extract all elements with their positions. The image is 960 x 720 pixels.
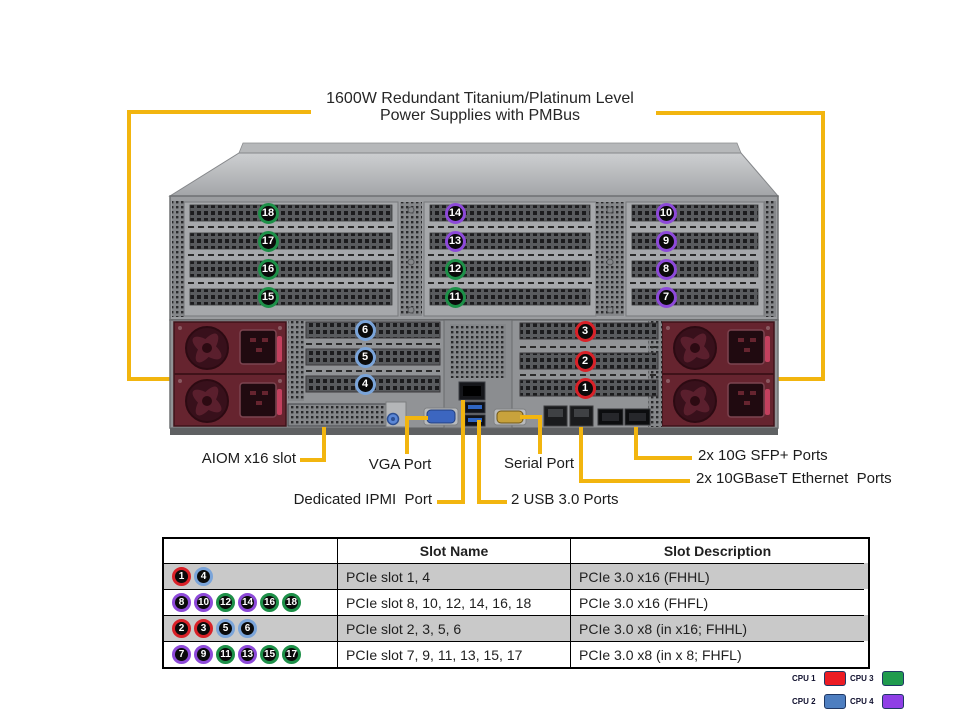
- rear-slot-badge-14: 14: [445, 203, 466, 224]
- page: 1600W Redundant Titanium/Platinum Level …: [0, 0, 960, 720]
- table-slot-badge-1: 1: [172, 567, 191, 586]
- legend-row-1: CPU 1CPU 3: [792, 671, 952, 685]
- legend-item-cpu-3: CPU 3: [850, 671, 908, 686]
- legend-color-swatch: [882, 671, 904, 686]
- table-slot-badge-16: 16: [260, 593, 279, 612]
- slot-name-cell: PCIe slot 7, 9, 11, 13, 15, 17: [337, 641, 570, 667]
- rear-slot-badge-5: 5: [355, 347, 376, 368]
- table-slot-badge-18: 18: [282, 593, 301, 612]
- aiom-callout-line: [322, 427, 326, 462]
- slot-badge-cell: 14: [164, 563, 337, 589]
- slot-name-cell: PCIe slot 2, 3, 5, 6: [337, 615, 570, 641]
- chassis-lid-back-edge: [239, 143, 741, 153]
- slot-description-cell: PCIe 3.0 x8 (in x16; FHHL): [570, 615, 864, 641]
- slot-table-header-2: Slot Description: [570, 539, 864, 563]
- edge-vent-right: [764, 201, 776, 317]
- aiom-label: AIOM x16 slot: [170, 451, 296, 466]
- usb-callout-line: [477, 420, 481, 504]
- slot-table-header-0: [164, 539, 337, 563]
- sfp-label: 2x 10G SFP+ Ports: [698, 448, 828, 463]
- baset-callout-stub: [579, 479, 690, 483]
- table-slot-badge-9: 9: [194, 645, 213, 664]
- legend-label: CPU 1: [792, 674, 818, 683]
- sfp-callout-stub: [634, 456, 692, 460]
- power-supply-right: [662, 322, 774, 426]
- table-slot-badge-2: 2: [172, 619, 191, 638]
- chassis-lid: [170, 153, 778, 196]
- vga-port: [424, 408, 458, 425]
- slot-name-cell: PCIe slot 1, 4: [337, 563, 570, 589]
- table-slot-badge-5: 5: [216, 619, 235, 638]
- rear-slot-badge-10: 10: [656, 203, 677, 224]
- legend-color-swatch: [882, 694, 904, 709]
- table-slot-badge-10: 10: [194, 593, 213, 612]
- rear-slot-badge-12: 12: [445, 259, 466, 280]
- edge-vent-left: [172, 201, 184, 317]
- table-slot-badge-4: 4: [194, 567, 213, 586]
- rear-slot-badge-9: 9: [656, 231, 677, 252]
- vent-strip-center-left: [288, 321, 304, 401]
- legend-color-swatch: [824, 671, 846, 686]
- chassis-foot: [170, 428, 778, 435]
- usb-label: 2 USB 3.0 Ports: [511, 492, 619, 507]
- legend-item-cpu-4: CPU 4: [850, 694, 908, 709]
- psu-bracket-right-top: [656, 111, 825, 115]
- ipmi-label: Dedicated IPMI Port: [270, 492, 432, 507]
- rear-slot-badge-18: 18: [258, 203, 279, 224]
- legend-row-2: CPU 2CPU 4: [792, 694, 952, 708]
- rear-slot-badge-3: 3: [575, 321, 596, 342]
- rear-slot-badge-2: 2: [575, 351, 596, 372]
- rear-slot-badge-1: 1: [575, 378, 596, 399]
- legend-color-swatch: [824, 694, 846, 709]
- legend-label: CPU 2: [792, 697, 818, 706]
- table-slot-badge-12: 12: [216, 593, 235, 612]
- rear-slot-badge-17: 17: [258, 231, 279, 252]
- legend-label: CPU 4: [850, 697, 876, 706]
- vga-callout-line: [405, 416, 409, 454]
- psu-title-line2: Power Supplies with PMBus: [380, 107, 580, 124]
- slot-table-row-1: 14PCIe slot 1, 4PCIe 3.0 x16 (FHHL): [164, 563, 868, 589]
- rear-slot-badge-4: 4: [355, 374, 376, 395]
- table-slot-badge-6: 6: [238, 619, 257, 638]
- slot-badge-cell: 7911131517: [164, 641, 337, 667]
- psu-callout-title: 1600W Redundant Titanium/Platinum Level …: [0, 90, 960, 124]
- baset-label: 2x 10GBaseT Ethernet Ports: [696, 471, 892, 486]
- table-slot-badge-7: 7: [172, 645, 191, 664]
- serial-callout-line: [538, 415, 542, 454]
- slot-badge-cell: 2356: [164, 615, 337, 641]
- slot-name-cell: PCIe slot 8, 10, 12, 14, 16, 18: [337, 589, 570, 615]
- psu-bracket-left-top: [127, 110, 311, 114]
- rear-slot-badge-8: 8: [656, 259, 677, 280]
- slot-table-row-3: 2356PCIe slot 2, 3, 5, 6PCIe 3.0 x8 (in …: [164, 615, 868, 641]
- legend-item-cpu-1: CPU 1: [792, 671, 850, 686]
- table-slot-badge-3: 3: [194, 619, 213, 638]
- rear-slot-badge-15: 15: [258, 287, 279, 308]
- aiom-slot: [288, 404, 386, 426]
- table-slot-badge-14: 14: [238, 593, 257, 612]
- table-slot-badge-15: 15: [260, 645, 279, 664]
- ipmi-callout-stub: [437, 500, 465, 504]
- usb-callout-stub: [477, 500, 507, 504]
- table-slot-badge-8: 8: [172, 593, 191, 612]
- slot-description-cell: PCIe 3.0 x16 (FHHL): [570, 563, 864, 589]
- cpu-legend: CPU 1CPU 3CPU 2CPU 4: [792, 671, 952, 717]
- table-slot-badge-13: 13: [238, 645, 257, 664]
- server-rear-view: [120, 140, 840, 445]
- baset-callout-line: [579, 427, 583, 483]
- power-supply-left: [174, 322, 286, 426]
- legend-item-cpu-2: CPU 2: [792, 694, 850, 709]
- slot-table-row-2: 81012141618PCIe slot 8, 10, 12, 14, 16, …: [164, 589, 868, 615]
- slot-description-cell: PCIe 3.0 x8 (in x 8; FHFL): [570, 641, 864, 667]
- psu-title-line1: 1600W Redundant Titanium/Platinum Level: [326, 90, 634, 107]
- riser-bay-3: [626, 202, 764, 316]
- ipmi-callout-line: [461, 400, 465, 504]
- rear-slot-badge-16: 16: [258, 259, 279, 280]
- slot-table-header-row: Slot NameSlot Description: [164, 539, 868, 563]
- slot-table: Slot NameSlot Description14PCIe slot 1, …: [162, 537, 870, 669]
- vga-label: VGA Port: [360, 457, 440, 472]
- slot-description-cell: PCIe 3.0 x16 (FHFL): [570, 589, 864, 615]
- table-slot-badge-17: 17: [282, 645, 301, 664]
- slot-badge-cell: 81012141618: [164, 589, 337, 615]
- serial-label: Serial Port: [498, 456, 580, 471]
- legend-label: CPU 3: [850, 674, 876, 683]
- rear-slot-badge-13: 13: [445, 231, 466, 252]
- table-slot-badge-11: 11: [216, 645, 235, 664]
- slot-table-header-1: Slot Name: [337, 539, 570, 563]
- rear-slot-badge-6: 6: [355, 320, 376, 341]
- aiom-callout-stub: [300, 458, 326, 462]
- slot-table-row-4: 7911131517PCIe slot 7, 9, 11, 13, 15, 17…: [164, 641, 868, 667]
- io-column-vent: [450, 324, 506, 378]
- rear-slot-badge-11: 11: [445, 287, 466, 308]
- riser-bay-1: [184, 202, 398, 316]
- rear-slot-badge-7: 7: [656, 287, 677, 308]
